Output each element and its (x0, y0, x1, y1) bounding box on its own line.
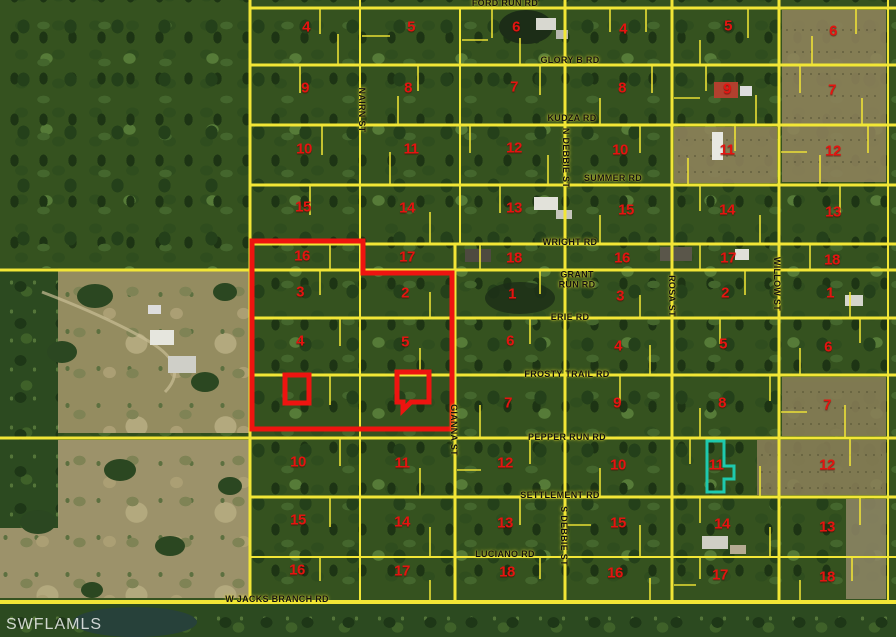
lot-number: 9 (723, 81, 731, 98)
lot-number: 16 (289, 562, 305, 579)
lot-number: 15 (610, 515, 626, 532)
lot-number: 12 (506, 140, 522, 157)
lot-number: 14 (719, 202, 735, 219)
lot-number: 10 (610, 457, 626, 474)
lot-number: 11 (404, 141, 419, 158)
lot-number: 5 (407, 19, 415, 36)
lot-number: 6 (824, 339, 832, 356)
lot-number: 4 (302, 19, 310, 36)
lot-number: 7 (823, 397, 831, 414)
lot-number: 11 (395, 455, 410, 472)
lot-number: 16 (607, 565, 623, 582)
lot-number: 17 (399, 249, 415, 266)
lot-number: 2 (401, 285, 409, 302)
lot-number: 10 (290, 454, 306, 471)
lot-number: 16 (614, 250, 630, 267)
lot-number: 18 (506, 250, 522, 267)
lot-number: 9 (613, 395, 621, 412)
lot-number: 11 (709, 457, 724, 474)
lot-number: 1 (826, 285, 834, 302)
lot-number: 4 (619, 21, 627, 38)
lot-number: 13 (506, 200, 522, 217)
lot-number: 17 (720, 250, 736, 267)
lot-number: 8 (718, 395, 726, 412)
lot-number: 13 (825, 204, 841, 221)
lot-number: 13 (819, 519, 835, 536)
lot-number: 6 (512, 19, 520, 36)
lot-number: 4 (296, 333, 304, 350)
lot-numbers-layer: 4564569878971011121011121514131514131617… (0, 0, 896, 637)
lot-number: 6 (506, 333, 514, 350)
lot-number: 14 (714, 516, 730, 533)
lot-number: 5 (724, 18, 732, 35)
lot-number: 18 (499, 564, 515, 581)
lot-number: 5 (719, 336, 727, 353)
lot-number: 4 (614, 338, 622, 355)
lot-number: 8 (404, 80, 412, 97)
lot-number: 7 (510, 79, 518, 96)
lot-number: 6 (829, 23, 837, 40)
lot-number: 5 (401, 334, 409, 351)
satellite-parcel-map[interactable]: FORD RUN RDGLORY B RDKUDZA RDSUMMER RDWR… (0, 0, 896, 637)
lot-number: 2 (721, 285, 729, 302)
watermark: SWFLAMLS (6, 616, 102, 634)
lot-number: 10 (296, 141, 312, 158)
lot-number: 14 (394, 514, 410, 531)
lot-number: 10 (612, 142, 628, 159)
lot-number: 12 (819, 457, 835, 474)
lot-number: 3 (296, 284, 304, 301)
lot-number: 11 (720, 142, 735, 159)
lot-number: 12 (497, 455, 513, 472)
lot-number: 16 (294, 248, 310, 265)
lot-number: 17 (394, 563, 410, 580)
lot-number: 3 (616, 288, 624, 305)
lot-number: 14 (399, 200, 415, 217)
lot-number: 15 (618, 202, 634, 219)
lot-number: 9 (301, 80, 309, 97)
lot-number: 13 (497, 515, 513, 532)
lot-number: 12 (825, 143, 841, 160)
lot-number: 15 (295, 199, 311, 216)
lot-number: 17 (712, 567, 728, 584)
lot-number: 18 (819, 569, 835, 586)
lot-number: 1 (508, 286, 516, 303)
lot-number: 7 (828, 82, 836, 99)
lot-number: 15 (290, 512, 306, 529)
lot-number: 18 (824, 252, 840, 269)
lot-number: 8 (618, 80, 626, 97)
lot-number: 7 (504, 395, 512, 412)
